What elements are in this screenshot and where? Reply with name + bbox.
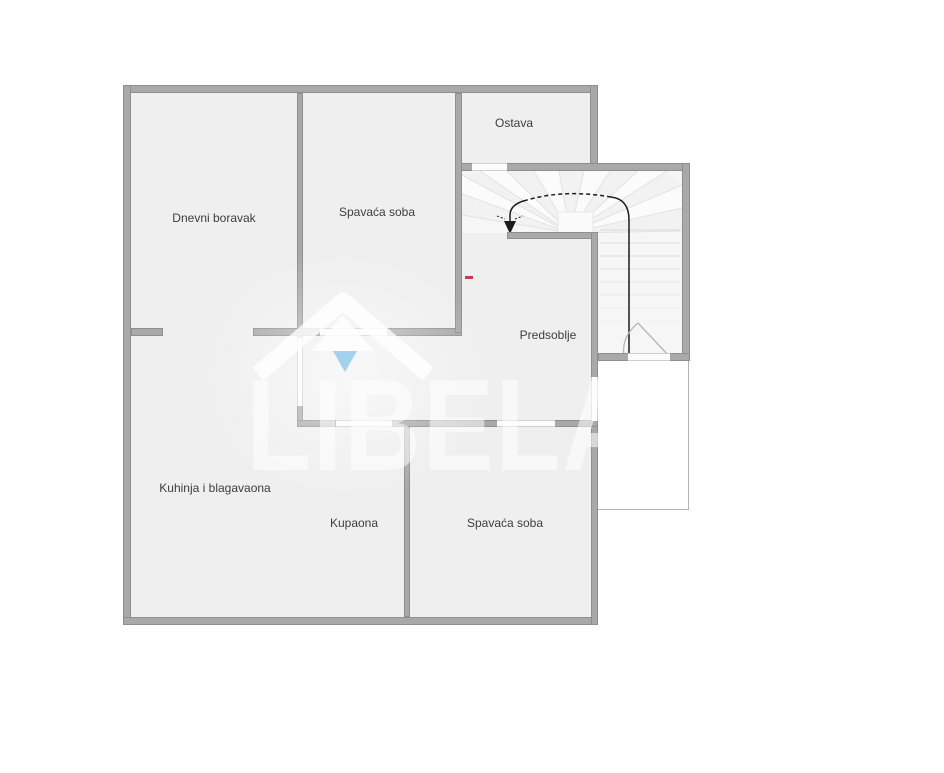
- wall: [123, 617, 598, 625]
- watermark-brand: LIBELA: [246, 360, 641, 490]
- wall: [590, 85, 598, 171]
- wall: [131, 328, 163, 336]
- room-label-spavaca-soba-top: Spavaća soba: [339, 205, 415, 219]
- room-label-spavaca-soba-bottom: Spavaća soba: [467, 516, 543, 530]
- door-opening: [472, 163, 507, 171]
- stair-landing: [558, 212, 593, 234]
- room-label-kuhinja: Kuhinja i blagavaona: [159, 481, 270, 495]
- room-label-ostava: Ostava: [495, 116, 533, 130]
- room-label-kupaona: Kupaona: [330, 516, 378, 530]
- wall: [123, 85, 131, 625]
- room-label-predsoblje: Predsoblje: [520, 328, 577, 342]
- wall: [507, 232, 598, 239]
- room-label-dnevni-boravak: Dnevni boravak: [172, 211, 255, 225]
- wall: [682, 163, 690, 361]
- wall: [123, 85, 598, 93]
- floorplan-canvas: LIBELA Dnevni boravak Spavaća soba Ostav…: [0, 0, 944, 773]
